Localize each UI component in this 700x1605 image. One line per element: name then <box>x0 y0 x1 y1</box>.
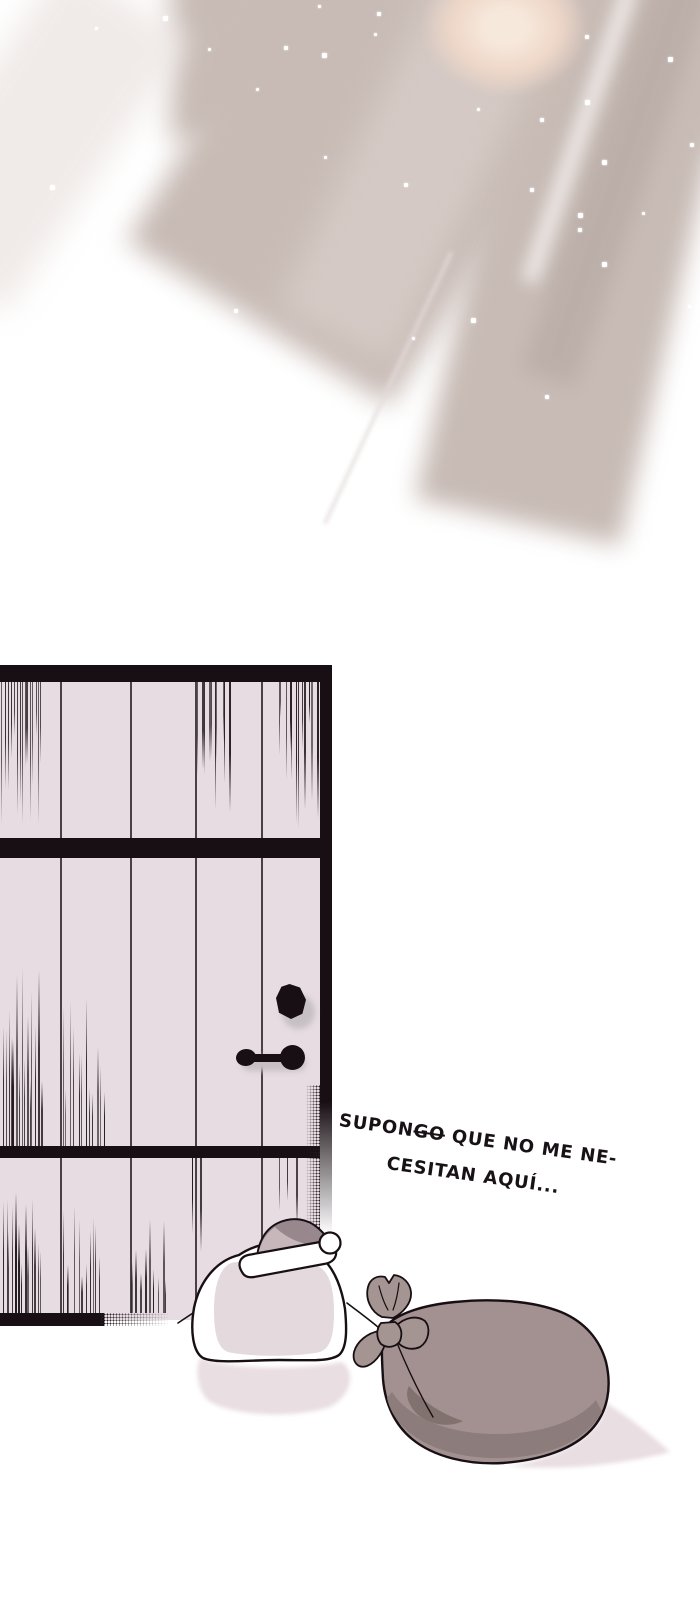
wood-grain-line <box>291 682 292 780</box>
wood-grain-line <box>65 1089 66 1146</box>
door-handle-base <box>280 1045 305 1070</box>
wood-grain-line <box>92 1093 93 1146</box>
wood-grain-line <box>104 1092 105 1146</box>
wood-grain-line <box>280 682 281 718</box>
wood-grain-line <box>1 682 2 825</box>
wood-grain-line <box>36 682 37 736</box>
door-frame-top <box>0 665 332 682</box>
wood-grain-line <box>6 1029 7 1146</box>
wood-grain-line <box>79 1053 80 1146</box>
door-rail-upper <box>0 838 320 858</box>
wood-grain-line <box>304 682 306 809</box>
wood-grain-line <box>309 682 310 723</box>
wood-grain-line <box>38 970 40 1146</box>
wood-grain-line <box>20 682 21 804</box>
wood-grain-line <box>11 682 12 758</box>
wood-grain-line <box>16 975 18 1146</box>
wood-grain-line <box>73 1027 74 1146</box>
wood-grain-line <box>5 682 6 789</box>
wood-grain-line <box>9 1010 10 1146</box>
wood-grain-line <box>8 682 9 790</box>
wood-grain-line <box>302 682 303 749</box>
shadow-under-bag <box>197 1358 350 1414</box>
wood-grain-line <box>17 682 18 815</box>
bow-knot <box>377 1322 401 1347</box>
dialogue-struck-text: GO <box>412 1120 446 1145</box>
wood-grain-line <box>197 682 198 776</box>
wood-grain-line <box>317 682 319 818</box>
wood-grain-line <box>41 1081 43 1147</box>
wood-grain-line <box>100 1065 101 1146</box>
wood-grain-line <box>38 682 39 825</box>
wood-grain-line <box>204 682 205 775</box>
wood-grain-line <box>298 682 299 829</box>
wood-grain-line <box>311 682 313 801</box>
wood-grain-line <box>286 682 287 780</box>
wood-grain-line <box>211 682 212 757</box>
wood-grain-line <box>24 1059 25 1146</box>
wood-grain-line <box>32 682 33 786</box>
wood-grain-line <box>26 682 28 764</box>
wood-grain-line <box>30 682 31 821</box>
wood-grain-line <box>14 682 15 736</box>
wood-grain-line <box>35 1025 36 1146</box>
wood-grain-line <box>296 682 297 824</box>
door-handle <box>236 1042 308 1072</box>
bow-upper-loop <box>367 1275 411 1318</box>
wood-grain-line <box>229 682 231 812</box>
wood-grain-line <box>86 998 87 1146</box>
wood-grain-line <box>89 1088 90 1146</box>
door-rail-lower <box>0 1146 320 1158</box>
comic-page: SUPONGO QUE NO ME NE- CESITAN AQUÍ... <box>0 0 700 1605</box>
wood-grain-line <box>22 682 23 824</box>
wood-grain-line <box>27 1016 29 1146</box>
wood-grain-line <box>63 1006 64 1146</box>
wood-grain-line <box>19 1063 20 1146</box>
santa-hat-pompom <box>320 1233 341 1254</box>
wood-grain-line <box>31 991 32 1146</box>
wood-grain-line <box>216 682 217 763</box>
wood-grain-line <box>70 1001 71 1146</box>
wood-grain-line <box>40 682 41 763</box>
foreground-scene <box>0 1180 700 1605</box>
wood-grain-line <box>224 682 225 783</box>
wood-grain-line <box>81 1054 82 1146</box>
wood-grain-line <box>97 1047 99 1146</box>
wood-grain-line <box>3 1026 4 1146</box>
wood-grain-line <box>12 1040 14 1146</box>
